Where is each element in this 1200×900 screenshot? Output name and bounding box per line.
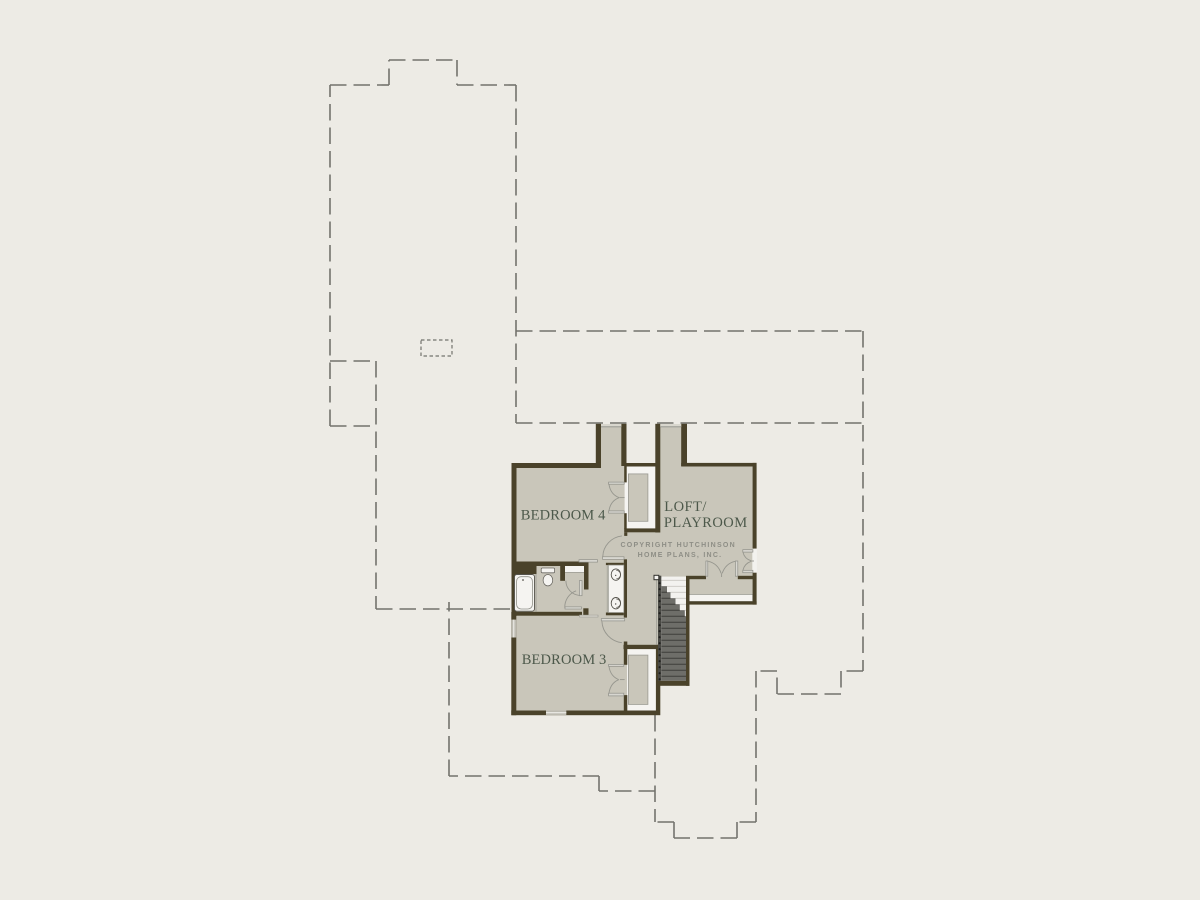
svg-text:PLAYROOM: PLAYROOM [664, 515, 748, 531]
svg-text:BEDROOM 3: BEDROOM 3 [522, 652, 607, 668]
svg-text:BEDROOM 4: BEDROOM 4 [521, 508, 606, 524]
svg-text:LOFT/: LOFT/ [664, 499, 707, 515]
svg-text:COPYRIGHT HUTCHINSON: COPYRIGHT HUTCHINSON [620, 542, 735, 549]
svg-text:HOME PLANS, INC.: HOME PLANS, INC. [638, 552, 723, 559]
